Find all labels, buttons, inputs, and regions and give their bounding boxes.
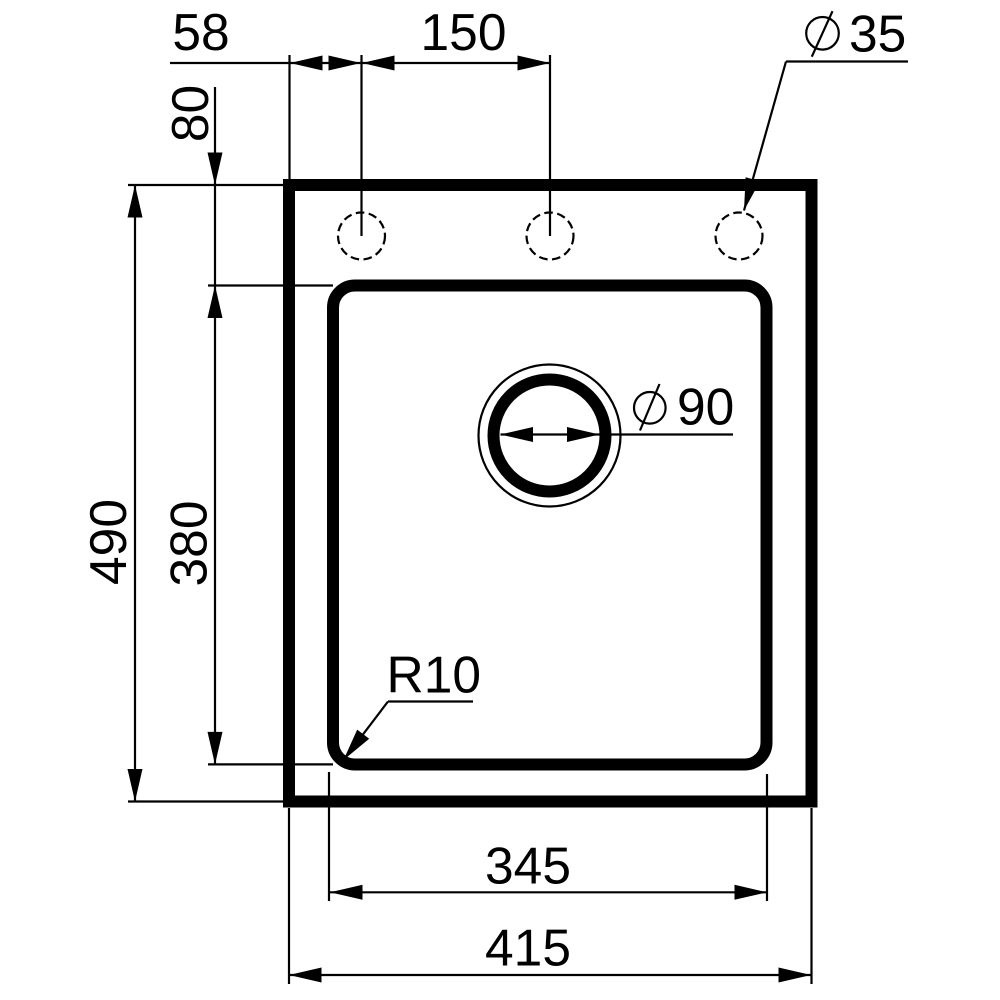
svg-text:345: 345 (485, 837, 571, 895)
svg-text:R10: R10 (387, 646, 481, 704)
svg-text:58: 58 (172, 3, 229, 61)
svg-text:90: 90 (677, 378, 734, 436)
svg-text:80: 80 (161, 85, 219, 142)
svg-text:35: 35 (849, 5, 906, 63)
svg-text:415: 415 (485, 919, 571, 977)
svg-text:150: 150 (421, 3, 507, 61)
svg-text:490: 490 (79, 499, 137, 585)
svg-text:380: 380 (160, 501, 218, 587)
